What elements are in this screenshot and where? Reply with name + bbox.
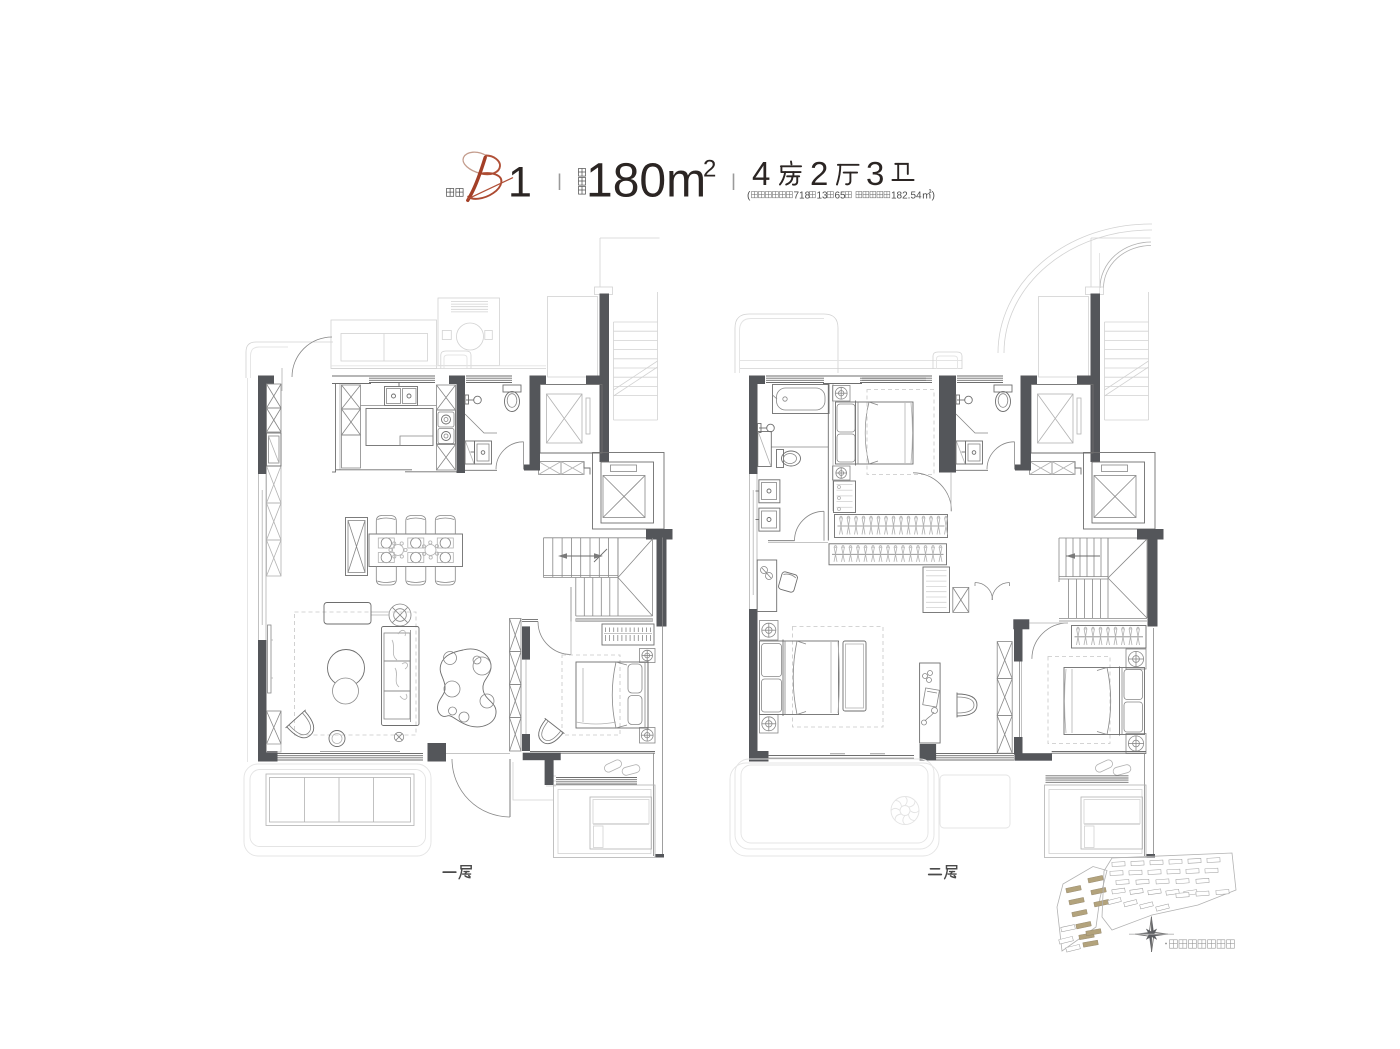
svg-text:3: 3	[866, 155, 884, 192]
svg-text:13: 13	[817, 191, 829, 202]
svg-text:180m: 180m	[586, 155, 706, 208]
svg-text:182.54㎡): 182.54㎡)	[891, 190, 935, 202]
svg-text:718: 718	[794, 191, 811, 202]
svg-text:1: 1	[508, 159, 532, 207]
svg-text:65: 65	[835, 191, 847, 202]
svg-text:2: 2	[810, 155, 828, 192]
svg-text:2: 2	[703, 156, 716, 183]
svg-text:4: 4	[752, 155, 770, 192]
